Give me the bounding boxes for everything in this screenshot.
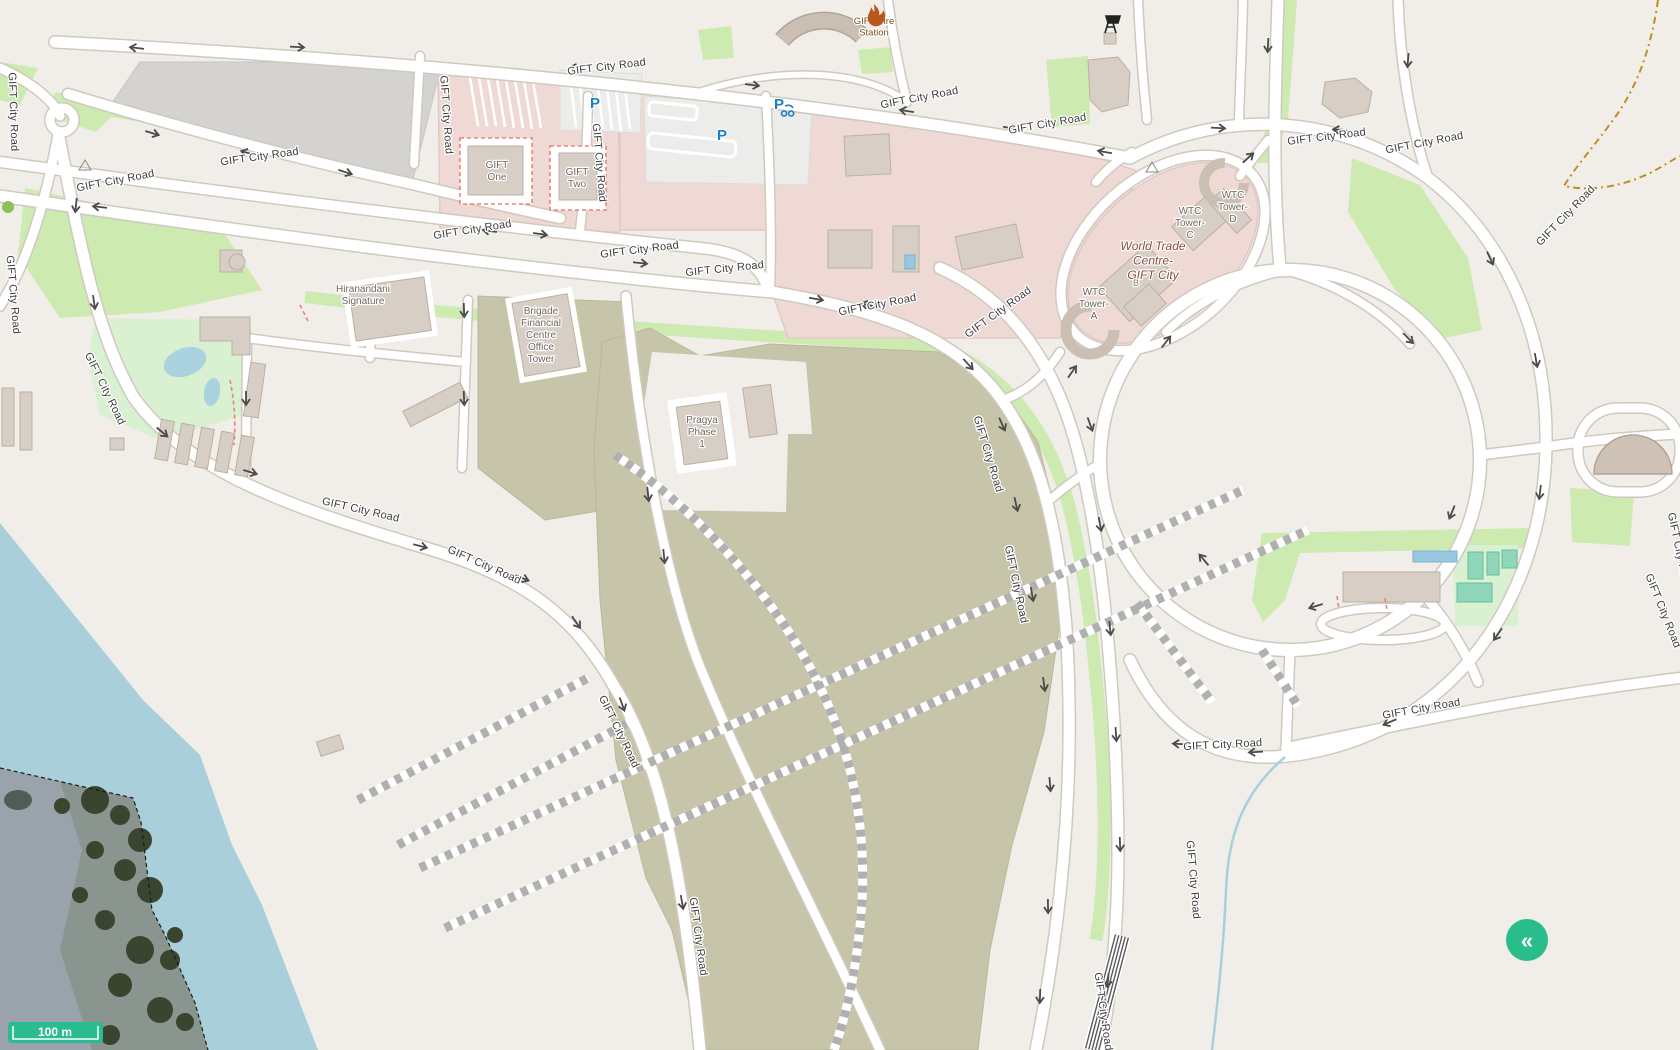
collapse-sidebar-button[interactable]: « (1506, 919, 1548, 961)
grass-area (698, 26, 734, 60)
collapse-chevrons-icon: « (1521, 928, 1533, 953)
satellite-pond (4, 790, 32, 810)
scale-bar-label: 100 m (38, 1025, 72, 1039)
map-canvas[interactable]: GIFT City RoadGIFT City RoadGIFT City Ro… (0, 0, 1680, 1050)
hiranandani-signature-label: HiranandaniSignature (336, 284, 390, 307)
map-viewport[interactable]: GIFT City RoadGIFT City RoadGIFT City Ro… (0, 0, 1680, 1050)
parking-icon: P (717, 127, 727, 144)
scale-bar: 100 m (8, 1022, 103, 1043)
tree-icon (2, 201, 14, 213)
moped-parking-icon: P (774, 96, 784, 113)
small-pool (905, 255, 915, 269)
parking-icon: P (590, 95, 600, 112)
grass-area (858, 47, 893, 74)
pool (1413, 551, 1457, 562)
roundabout-building (1343, 572, 1440, 602)
gift-one-label: GIFTOne (486, 160, 509, 183)
gift-two-label: GIFTTwo (566, 167, 589, 190)
wtc-tower-b-label: B (1133, 278, 1139, 288)
